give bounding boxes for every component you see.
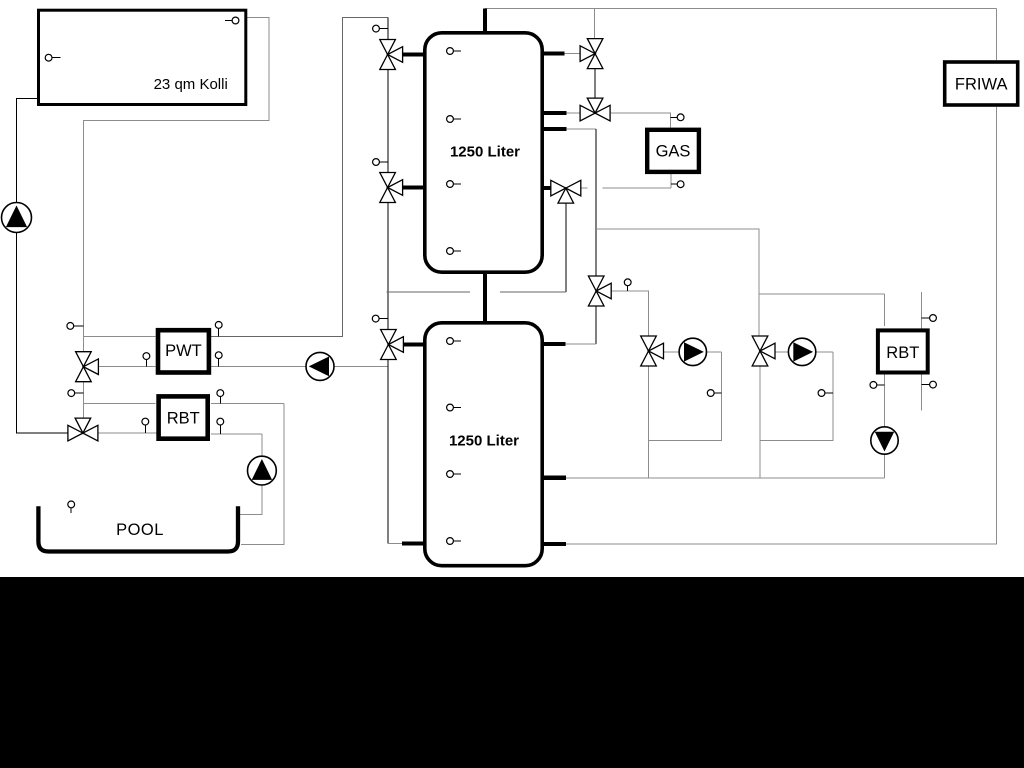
svg-text:RBT: RBT xyxy=(167,410,200,428)
svg-text:1250 Liter: 1250 Liter xyxy=(449,433,519,450)
svg-text:POOL: POOL xyxy=(116,521,164,539)
svg-text:PWT: PWT xyxy=(165,342,202,360)
svg-text:GAS: GAS xyxy=(656,143,691,161)
svg-text:FRIWA: FRIWA xyxy=(955,75,1008,93)
svg-text:23 qm Kolli: 23 qm Kolli xyxy=(154,76,228,93)
svg-text:RBT: RBT xyxy=(886,344,919,362)
svg-text:1250 Liter: 1250 Liter xyxy=(450,144,520,161)
